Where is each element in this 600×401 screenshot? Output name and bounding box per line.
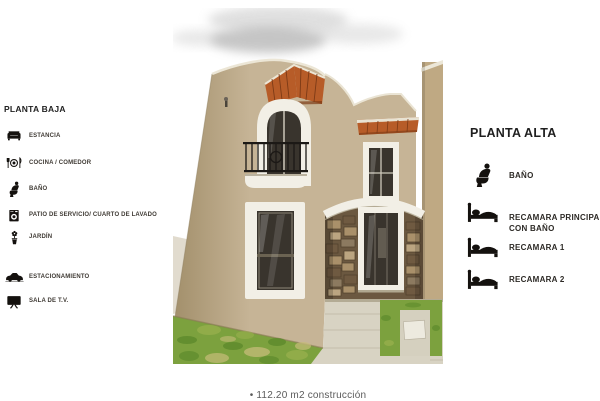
feature-label: RECAMARA 1 <box>509 242 565 253</box>
feature-label: RECAMARA 2 <box>509 274 565 285</box>
toilet-icon <box>463 162 503 189</box>
feature-label: JARDÍN <box>29 234 52 240</box>
tv-icon <box>2 294 26 309</box>
feature-item: RECAMARA 1 <box>463 237 565 258</box>
entry <box>325 195 423 299</box>
dining-icon <box>2 155 26 171</box>
feature-label: RECAMARA PRINCIPAL <box>509 212 600 223</box>
planter <box>380 300 442 356</box>
feature-label: COCINA / COMEDOR <box>29 160 91 166</box>
house-photo <box>173 8 443 364</box>
right-window-awning <box>357 117 419 135</box>
sofa-icon <box>2 128 26 144</box>
feature-item: RECAMARA 2 <box>463 269 565 290</box>
feature-label: BAÑO <box>29 186 47 192</box>
feature-label: BAÑO <box>509 170 534 181</box>
entry-door <box>358 207 404 293</box>
feature-item: BAÑO <box>2 179 47 199</box>
bed-icon <box>463 237 503 258</box>
feature-label-line2: CON BAÑO <box>509 223 600 234</box>
feature-item: SALA DE T.V. <box>2 291 68 311</box>
feature-label: SALA DE T.V. <box>29 298 68 304</box>
bed-icon <box>463 269 503 290</box>
planta-baja-title: PLANTA BAJA <box>4 104 66 114</box>
sky-clouds <box>173 8 403 53</box>
feature-item: PATIO DE SERVICIO/ CUARTO DE LAVADO <box>2 205 157 225</box>
upper-right-window <box>363 142 399 202</box>
toilet-icon <box>2 181 26 198</box>
planta-alta-title: PLANTA ALTA <box>470 126 557 140</box>
paper-sheet <box>403 320 425 339</box>
feature-item: ESTACIONAMIENTO <box>2 267 89 287</box>
feature-item: BAÑO <box>463 162 534 189</box>
feature-label: PATIO DE SERVICIO/ CUARTO DE LAVADO <box>29 212 157 218</box>
feature-label: ESTACIONAMIENTO <box>29 274 89 280</box>
feature-item: JARDÍN <box>2 227 52 247</box>
feature-item: ESTANCIA <box>2 126 60 146</box>
feature-item: COCINA / COMEDOR <box>2 153 91 173</box>
feature-label: ESTANCIA <box>29 133 60 139</box>
bed-icon <box>463 202 503 223</box>
plant-icon <box>2 228 26 246</box>
car-icon <box>2 271 26 283</box>
footer-area-text: • 112.20 m2 construcción <box>173 390 443 401</box>
washer-icon <box>2 207 26 224</box>
ground-floor-window <box>245 202 305 299</box>
feature-item: RECAMARA PRINCIPAL CON BAÑO <box>463 202 600 234</box>
right-side-wall <box>421 60 443 299</box>
